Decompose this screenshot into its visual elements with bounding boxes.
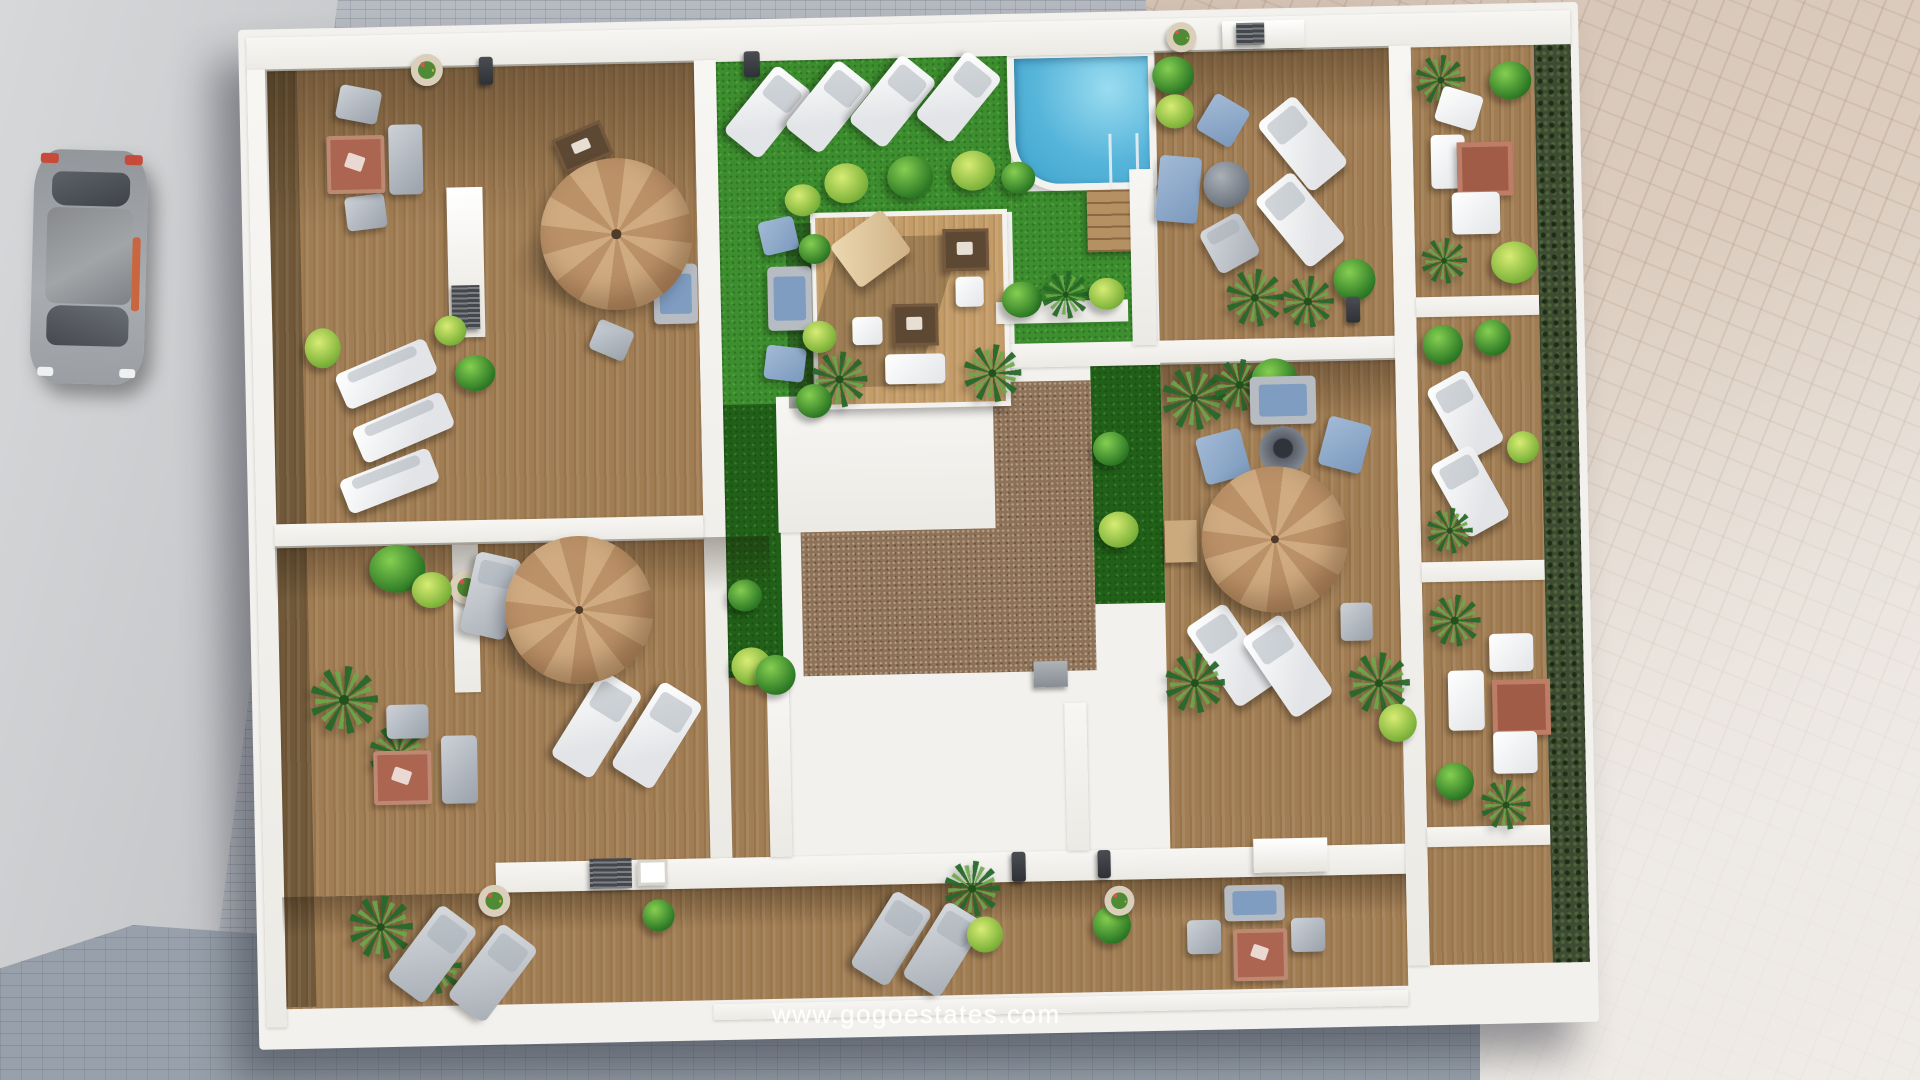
seat-white <box>1448 670 1485 731</box>
divider-wall <box>1416 295 1539 318</box>
divider-wall <box>1129 169 1157 345</box>
rug <box>326 135 385 194</box>
core-roof-gravel <box>801 526 1097 676</box>
garden-lawn-shaded <box>721 404 784 678</box>
parked-car <box>29 149 149 386</box>
armchair-blue <box>763 344 807 382</box>
divider-wall <box>1427 825 1550 848</box>
sink <box>637 859 668 886</box>
seat-cushion <box>955 276 984 307</box>
side-table <box>1164 520 1197 563</box>
rug <box>1233 928 1288 981</box>
watermark: www.gogoestates.com <box>772 999 1061 1030</box>
bollard-light <box>479 57 494 85</box>
rug <box>373 750 432 805</box>
coffee-table <box>942 228 989 271</box>
divider-wall <box>1064 702 1089 850</box>
armchair <box>386 704 429 739</box>
coffee-table <box>892 303 939 346</box>
cushion <box>1233 890 1277 915</box>
bollard-light <box>1097 850 1111 878</box>
divider-wall <box>767 677 793 857</box>
garden-lawn-shaded <box>1090 363 1165 604</box>
building-roof <box>238 2 1599 1050</box>
car-taillight-left <box>41 153 59 163</box>
lounger-blue <box>1155 155 1202 224</box>
bollard-light <box>744 51 761 77</box>
fire-pit-table <box>1457 141 1514 196</box>
bush <box>755 654 796 695</box>
car-roof <box>45 207 133 305</box>
bollard-light <box>1346 297 1361 323</box>
armchair-white <box>1452 192 1501 235</box>
car-taillight-right <box>125 155 143 165</box>
armchair <box>344 193 388 232</box>
car-headlight-right <box>119 369 135 378</box>
sofa-two-seat <box>388 124 423 195</box>
car-windshield <box>46 305 129 347</box>
armchair-white <box>1489 633 1534 672</box>
kitchen-counter <box>1253 837 1328 873</box>
armchair <box>1291 917 1326 952</box>
bollard-light <box>1011 852 1026 882</box>
cushion <box>1259 383 1307 417</box>
sofa-two-seat <box>441 735 478 804</box>
outdoor-sofa <box>767 266 812 331</box>
outdoor-sofa <box>1224 884 1285 921</box>
car-headlight-left <box>37 367 53 376</box>
car-rear-window <box>52 171 131 207</box>
armchair-white <box>1493 731 1538 774</box>
divider-wall <box>1421 560 1544 583</box>
car-accent-stripe <box>131 237 141 311</box>
ac-unit <box>1033 661 1068 688</box>
seat-cushion <box>852 317 883 346</box>
bbq-grill <box>589 858 632 889</box>
cube-table <box>1340 602 1373 641</box>
bush <box>1001 161 1036 194</box>
armchair <box>1187 920 1222 955</box>
cushion <box>773 276 806 320</box>
bench-cushions <box>885 353 946 384</box>
outdoor-sofa <box>1249 376 1316 425</box>
bbq-grill <box>1236 23 1264 46</box>
aerial-render: www.gogoestates.com <box>0 0 1920 1080</box>
fire-pit-table <box>1492 679 1551 736</box>
